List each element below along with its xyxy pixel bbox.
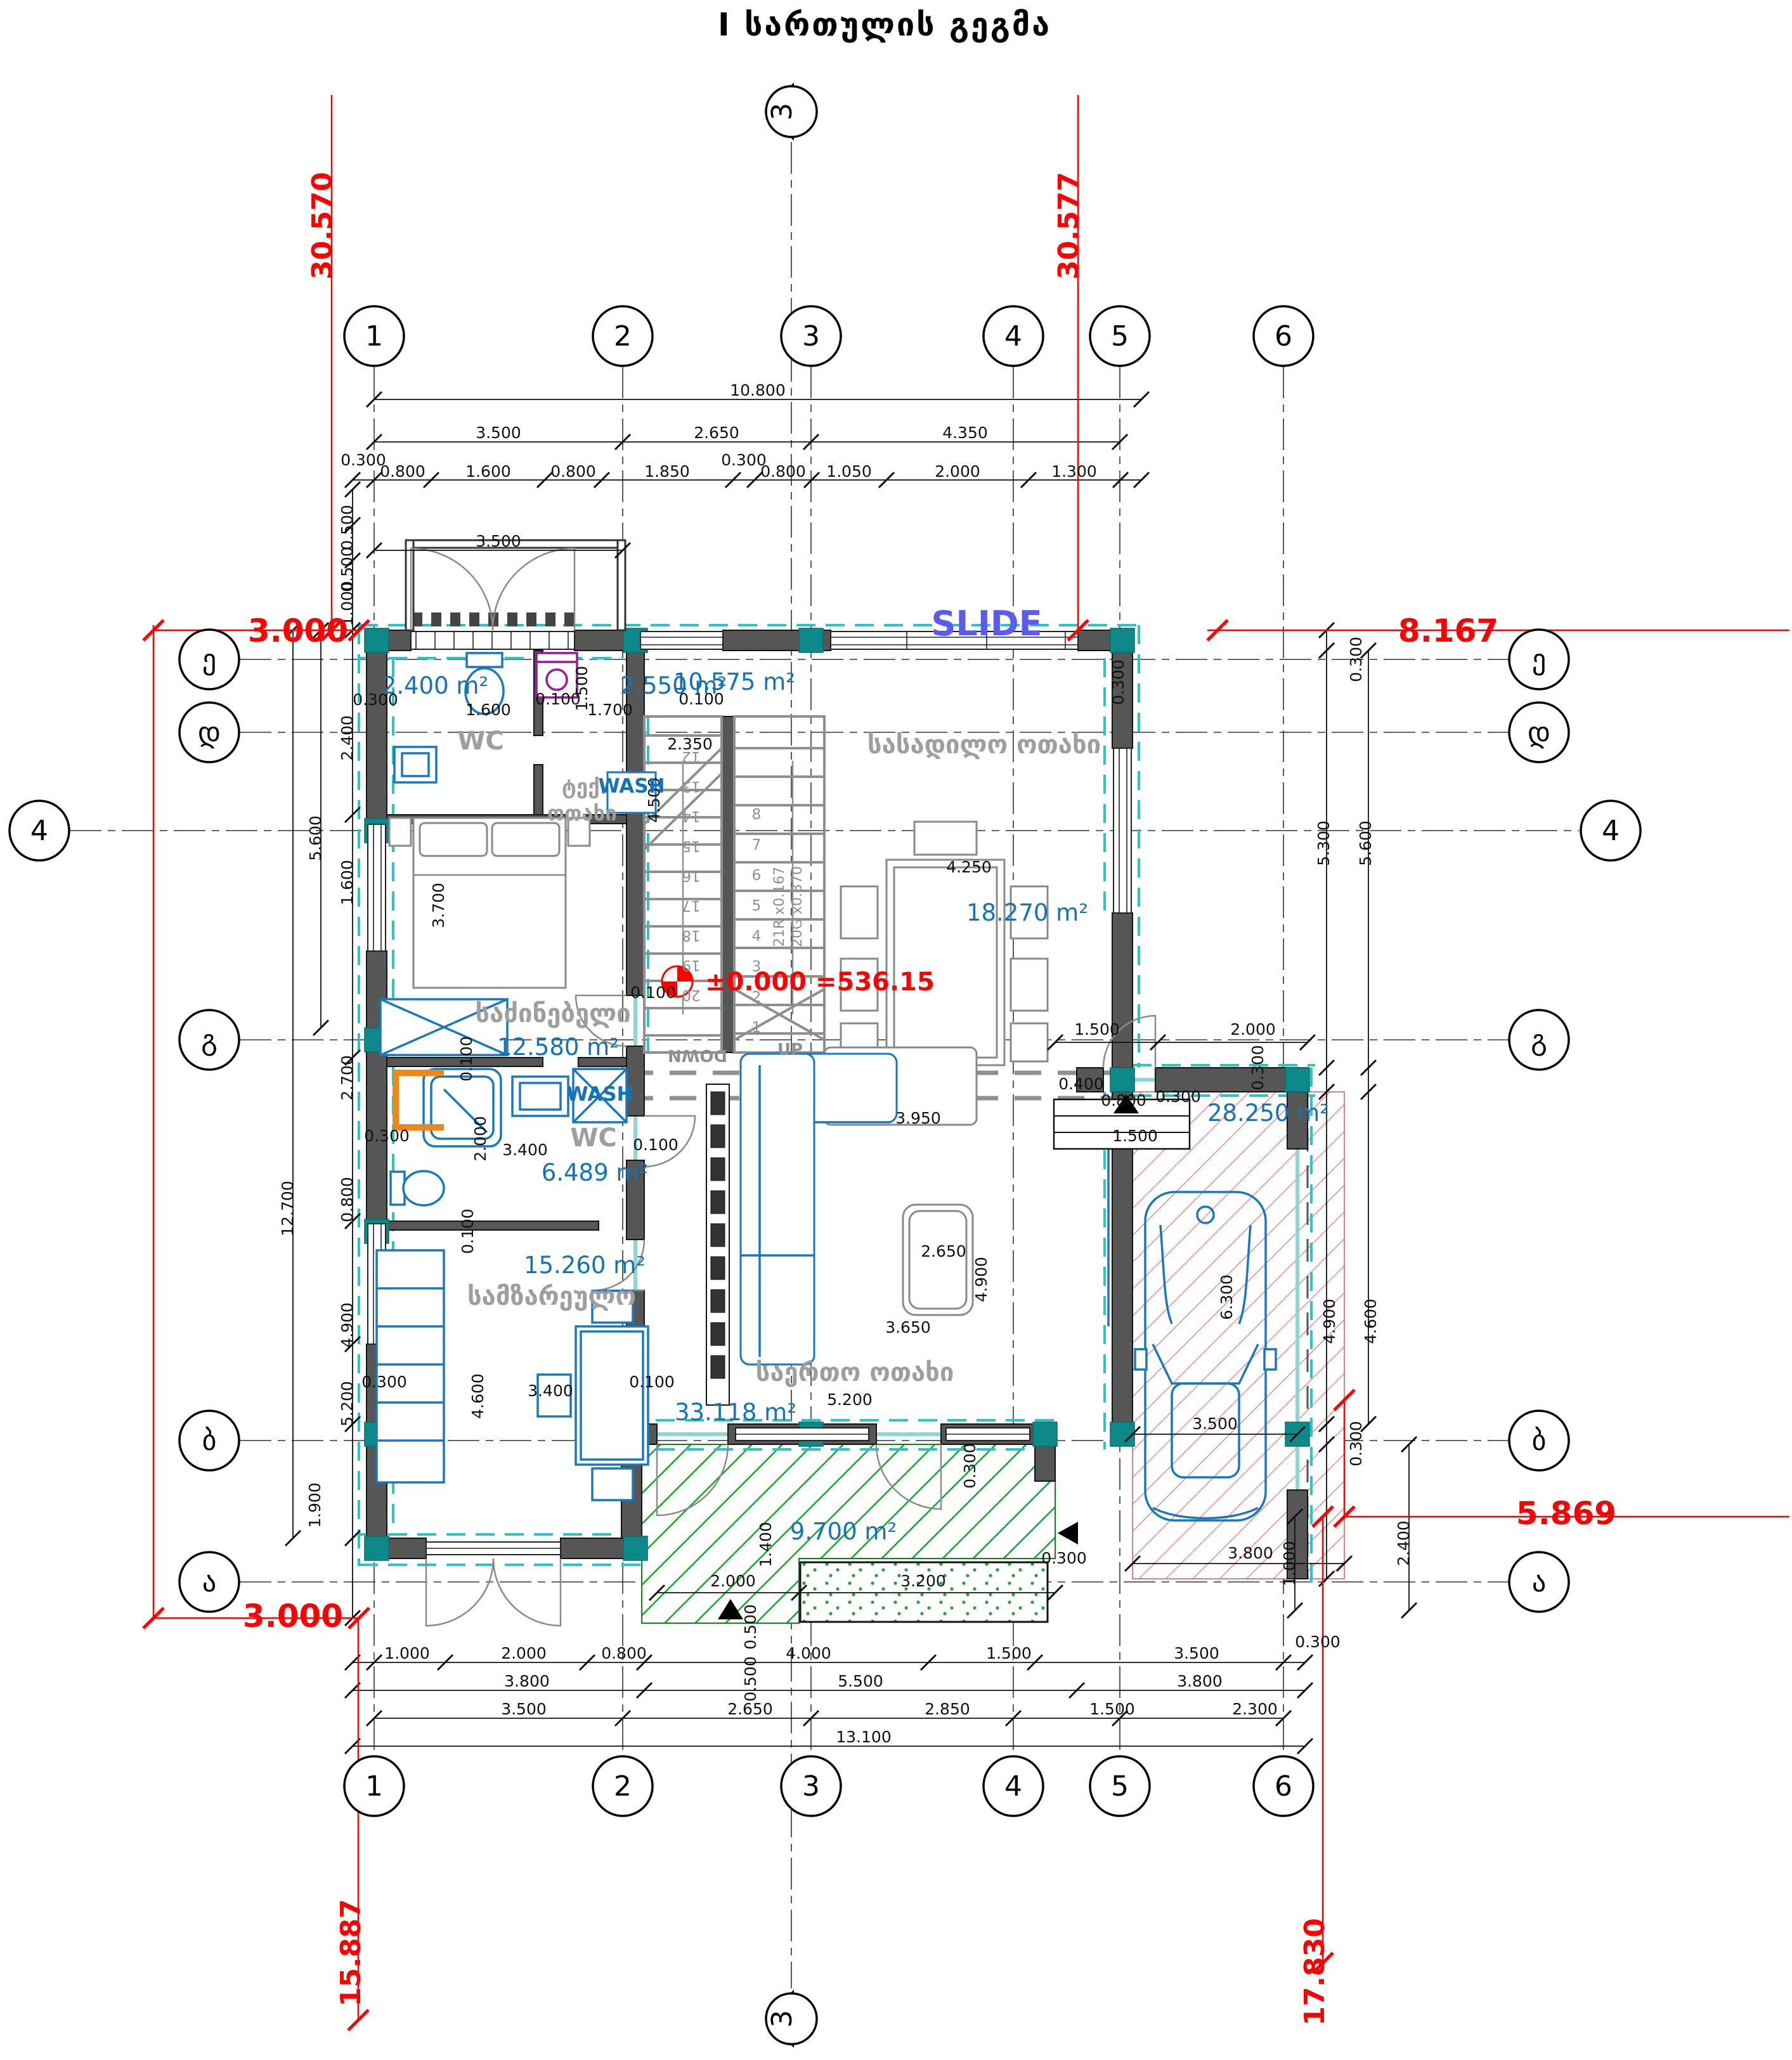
grid-bubble-row-გ-label: გ [1531, 1024, 1547, 1056]
section-marker-label: 3 [766, 103, 798, 120]
dimension-label: 3.800 [504, 1672, 550, 1690]
dimension-label: 0.100 [458, 1208, 477, 1254]
shelf-unit [711, 1290, 725, 1312]
dimension-label: 3.800 [1228, 1544, 1273, 1562]
grid-bubble-col-6-label: 6 [1275, 1770, 1292, 1803]
window-mullion [431, 612, 441, 626]
dimension-label: 13.100 [836, 1728, 891, 1746]
dimension-label: 4.000 [786, 1644, 831, 1662]
stair-number: 13 [682, 778, 700, 794]
shelf-unit [711, 1224, 725, 1247]
room-area: 28.250 m² [1207, 1099, 1329, 1127]
stair-number: 14 [682, 808, 700, 824]
shelf-unit [711, 1191, 725, 1214]
dimension-label: 2.650 [727, 1700, 773, 1718]
floor-plan-canvas: 10.8003.5002.6504.3500.3000.3000.8001.60… [0, 0, 1792, 2060]
dimension-label: 0.500 [741, 1604, 760, 1650]
dimension-label: 2.700 [338, 1055, 356, 1101]
red-dimension-label: 15.887 [335, 1899, 367, 2007]
red-dimension-label: 17.830 [1299, 1918, 1331, 2026]
dimension-label: 0.800 [1101, 1091, 1146, 1110]
dimension-label: 1.050 [826, 462, 872, 481]
dimension-label: 10.800 [730, 381, 785, 399]
stair-number: 7 [752, 837, 762, 853]
dimension-label: 1.500 [1074, 1020, 1120, 1039]
dimension-label: 0.300 [1347, 1421, 1365, 1467]
grid-bubble-row-ა-label: ა [202, 1566, 216, 1598]
dimension-label: 0.800 [380, 462, 425, 481]
grid-bubble-row-ბ-label: ბ [202, 1425, 217, 1457]
dimension-label: 0.800 [601, 1644, 647, 1662]
shelf-unit [711, 1356, 725, 1378]
garage-side-arrow [1058, 1522, 1078, 1545]
dimension-label: 3.650 [885, 1318, 931, 1337]
fixture-label: WASH [598, 775, 665, 798]
window-mullion [469, 612, 479, 626]
grid-bubble-col-1-label: 1 [365, 320, 383, 353]
room-name: სამზარეულო [467, 1282, 636, 1311]
dimension-label: 1.500 [573, 666, 591, 711]
dimension-label: 0.300 [1295, 1633, 1341, 1651]
stair-note: 21R x0.167 [772, 867, 788, 947]
column [799, 628, 823, 652]
dimension-label: 0.300 [1347, 637, 1365, 682]
dimension-label: 2.650 [694, 424, 739, 442]
dimension-label: 2.650 [921, 1242, 966, 1260]
dimension-label: 5.600 [1356, 820, 1375, 866]
room-name: საძინებელი [475, 999, 630, 1028]
dimension-label: 0.400 [1058, 1075, 1104, 1093]
column [1110, 1422, 1134, 1446]
dimension-label: 2.000 [501, 1644, 547, 1662]
grid-bubble-row-ა-label: ა [1532, 1566, 1546, 1598]
stair-number: 16 [682, 867, 700, 884]
room-area: 9.700 m² [790, 1518, 897, 1545]
dimension-label: 4.600 [1361, 1299, 1380, 1344]
room-area: 15.260 m² [524, 1252, 646, 1279]
dimension-label: 12.700 [278, 1181, 297, 1236]
grid-bubble-col-2-label: 2 [614, 1770, 632, 1803]
red-dimension-label: 3.000 [243, 1598, 343, 1635]
dimension-label: 3.500 [476, 424, 521, 442]
stair-number: 19 [682, 957, 700, 973]
grid-bubble-row-ბ-label: ბ [1532, 1425, 1547, 1457]
dimension-label: 0.800 [550, 462, 596, 481]
shelf-unit [711, 1257, 725, 1279]
dimension-label: 2.000 [1230, 1020, 1276, 1039]
dimension-label: 5.300 [1315, 820, 1333, 866]
kitchen-counter [377, 1250, 444, 1482]
dimension-label: 2.000 [935, 462, 980, 481]
dimension-label: 5.500 [838, 1672, 883, 1690]
grid-bubble-col-5-label: 5 [1111, 1770, 1129, 1803]
dimension-label: 0.800 [338, 1177, 356, 1222]
fixture-label: WASH [566, 1083, 633, 1106]
grid-bubble-col-2-label: 2 [614, 320, 632, 353]
column [623, 1536, 647, 1560]
dimension-label: 5.200 [338, 1381, 356, 1427]
dimension-label: 1.400 [756, 1522, 775, 1567]
stair-note: 20G x0.370 [789, 866, 805, 947]
dimension-label: 3.500 [1174, 1644, 1219, 1662]
window-mullion [526, 612, 536, 626]
dimension-label: 4.900 [972, 1257, 990, 1302]
stair-number: 8 [752, 807, 762, 823]
red-dimension-label: 8.167 [1398, 612, 1498, 649]
stair-number: 6 [752, 867, 762, 884]
red-dimension-label: 3.000 [248, 612, 348, 649]
room-area: 18.270 m² [966, 899, 1088, 926]
dimension-label: 3.700 [429, 883, 448, 928]
grid-bubble-row-ე-label: ე [202, 644, 216, 676]
grid-bubble-col-1-label: 1 [365, 1770, 383, 1803]
stair-up-label: UP [777, 1040, 803, 1059]
grid-bubble-row-დ-label: დ [1528, 716, 1550, 749]
dimension-label: 4.900 [338, 1302, 356, 1348]
dimension-label: 1.600 [465, 462, 511, 481]
dimension-label: 1.500 [1089, 1700, 1135, 1718]
grid-bubble-col-3-label: 3 [802, 1770, 820, 1803]
dimension-label: 4.900 [1320, 1299, 1339, 1344]
dimension-label: 4.250 [946, 858, 992, 876]
stair-number: 5 [752, 898, 762, 914]
window-mullion [545, 612, 555, 626]
shelf-unit [711, 1158, 725, 1181]
stair-number: 18 [682, 927, 700, 943]
room-area: 12.580 m² [497, 1033, 619, 1061]
dimension-label: 1.000 [1280, 1541, 1299, 1586]
dimension-label: 2.400 [1394, 1520, 1413, 1566]
shelf-unit [711, 1092, 725, 1115]
dimension-label: 2.400 [338, 715, 356, 761]
dimension-label: 3.800 [1177, 1672, 1223, 1690]
dining-table [841, 822, 1048, 1065]
dimension-label: 0.100 [633, 1136, 678, 1154]
room-name: საერთო ოთახი [756, 1358, 954, 1387]
dimension-label: 0.100 [457, 1036, 476, 1082]
stair-number: 4 [752, 928, 762, 945]
dimension-label: 1.600 [465, 701, 511, 719]
dimension-label: 6.300 [1217, 1274, 1236, 1320]
shelf-unit [711, 1323, 725, 1345]
dimension-label: 0.300 [1155, 1087, 1201, 1106]
stair-number: 1 [752, 1020, 762, 1036]
dimension-label: 4.600 [469, 1373, 487, 1419]
window-mullion [450, 612, 460, 626]
grid-bubble-axis4-label: 4 [1602, 815, 1620, 847]
dimension-label: 2.000 [471, 1116, 490, 1162]
red-dimension-label: 30.577 [1053, 172, 1085, 280]
dimension-label: 0.500 [741, 1656, 760, 1702]
dimension-label: 2.300 [1232, 1700, 1278, 1718]
grid-bubble-row-დ-label: დ [198, 716, 221, 749]
window-mullion [507, 612, 517, 626]
room-name: ოთახი [547, 801, 617, 826]
stair-down-label: DOWN [668, 1046, 727, 1065]
dimension-label: 1.900 [306, 1482, 324, 1528]
column [1110, 1068, 1134, 1092]
red-dimension-label: 5.869 [1516, 1495, 1616, 1532]
dimension-label: 0.300 [1109, 659, 1127, 705]
dimension-label: 1.700 [587, 701, 633, 719]
dimension-label: 0.300 [341, 451, 386, 469]
stair-number: 12 [682, 748, 700, 765]
room-name: WC [570, 1124, 616, 1153]
dimension-label: 1.500 [986, 1644, 1032, 1662]
column [1110, 628, 1134, 652]
grid-bubble-col-5-label: 5 [1111, 320, 1129, 353]
level-mark-label: ±0.000 =536.15 [705, 968, 935, 997]
dimension-label: 3.950 [895, 1109, 941, 1127]
dimension-label: 0.300 [1249, 1045, 1267, 1091]
dimension-label: 3.500 [1192, 1415, 1238, 1433]
stair-number: 17 [682, 897, 700, 914]
grid-bubble-row-ე-label: ე [1532, 644, 1546, 676]
dimension-label: 0.800 [760, 462, 806, 481]
grid-bubble-row-გ-label: გ [201, 1024, 218, 1056]
dimension-label: 3.500 [501, 1700, 547, 1718]
grid-bubble-col-4-label: 4 [1004, 1770, 1022, 1803]
slide-label: SLIDE [931, 604, 1042, 644]
dimension-label: 3.500 [476, 532, 521, 550]
dimension-label: 3.400 [502, 1141, 548, 1159]
column [1285, 1068, 1309, 1092]
dimension-label: 0.300 [361, 1373, 407, 1391]
dimension-label: 3.400 [528, 1382, 573, 1400]
room-area: 10.575 m² [673, 668, 795, 696]
grid-bubble-axis4-label: 4 [30, 815, 48, 847]
grid-bubble-col-6-label: 6 [1275, 320, 1292, 353]
section-marker-label: 3 [766, 2010, 798, 2028]
room-name: WC [457, 727, 503, 756]
grid-bubble-col-4-label: 4 [1004, 320, 1022, 353]
room-area: 33.118 m² [675, 1399, 796, 1426]
dimension-label: 0.300 [1041, 1549, 1087, 1567]
dimension-label: 2.850 [925, 1700, 970, 1718]
shelf-unit [711, 1125, 725, 1148]
tv-wall [706, 1084, 729, 1405]
dimension-label: 0.300 [961, 1443, 979, 1489]
dimension-label: 0.500 [338, 505, 356, 550]
dimension-label: 5.200 [827, 1390, 873, 1409]
dimension-label: 4.350 [942, 424, 988, 442]
dimension-label: 2.000 [710, 1572, 756, 1590]
grid-bubble-col-3-label: 3 [802, 320, 820, 353]
dimension-label: 0.300 [721, 451, 767, 469]
stair-number: 15 [682, 838, 700, 854]
column [365, 628, 389, 652]
window-mullion [564, 612, 575, 626]
dimension-label: 3.200 [900, 1572, 946, 1590]
red-dimension-label: 30.570 [306, 172, 339, 280]
dimension-label: 1.600 [338, 860, 356, 905]
dimension-label: 0.300 [364, 1127, 410, 1145]
room-name: სასადილო ოთახი [867, 730, 1101, 760]
dimension-label: 1.850 [644, 462, 690, 481]
column [365, 1536, 389, 1560]
dimension-label: 5.600 [306, 815, 325, 861]
dimension-label: 0.100 [630, 983, 676, 1002]
room-area: 6.489 m² [542, 1159, 649, 1186]
room-area: 2.400 m² [382, 672, 489, 699]
dimension-label: 1.000 [384, 1644, 430, 1662]
column [1033, 1422, 1057, 1446]
stair-number: 20 [682, 987, 700, 1003]
dimension-label: 1.500 [1112, 1127, 1158, 1145]
dimension-label: 0.100 [629, 1373, 675, 1391]
dimension-label: 1.300 [1051, 462, 1097, 481]
